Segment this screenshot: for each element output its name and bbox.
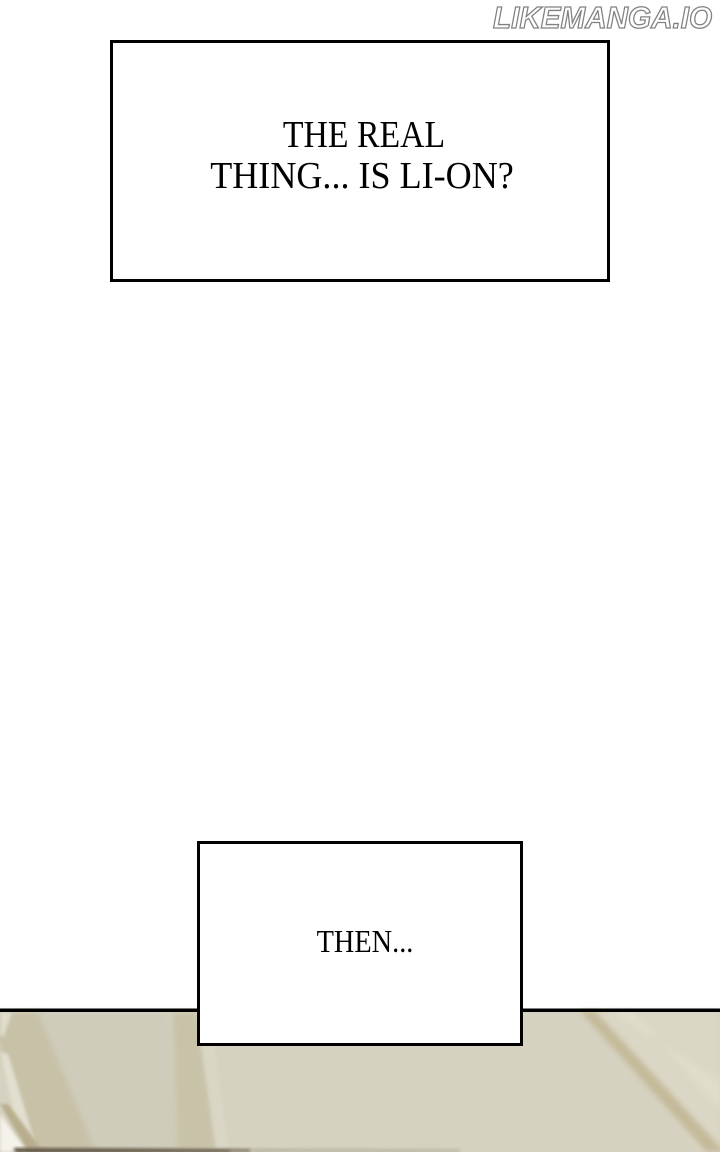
svg-text:LIKEMANGA.IO: LIKEMANGA.IO (493, 1, 712, 34)
